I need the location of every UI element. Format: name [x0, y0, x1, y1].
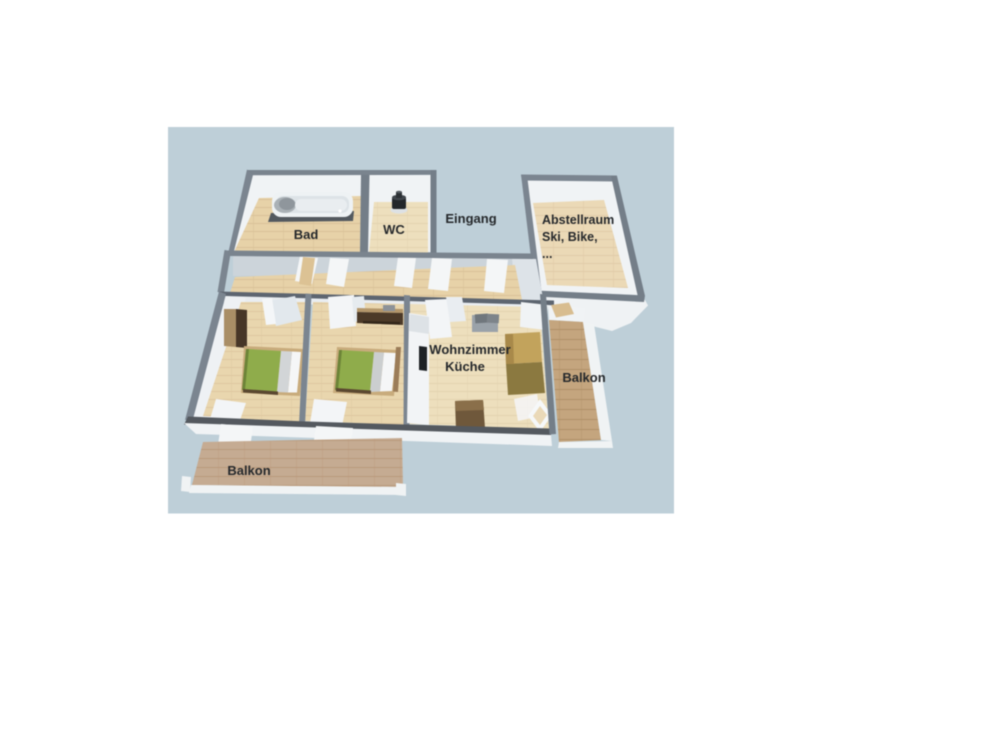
- svg-text:Eingang: Eingang: [445, 211, 496, 226]
- svg-text:Balkon: Balkon: [227, 463, 270, 478]
- svg-text:Ski, Bike,: Ski, Bike,: [542, 230, 598, 244]
- svg-text:Küche: Küche: [445, 359, 485, 374]
- svg-text:Abstellraum: Abstellraum: [542, 213, 614, 227]
- svg-text:...: ...: [542, 247, 552, 261]
- svg-text:WC: WC: [383, 222, 405, 237]
- svg-text:Balkon: Balkon: [562, 370, 605, 385]
- svg-text:Wohnzimmer: Wohnzimmer: [429, 342, 510, 357]
- svg-text:Bad: Bad: [294, 227, 319, 242]
